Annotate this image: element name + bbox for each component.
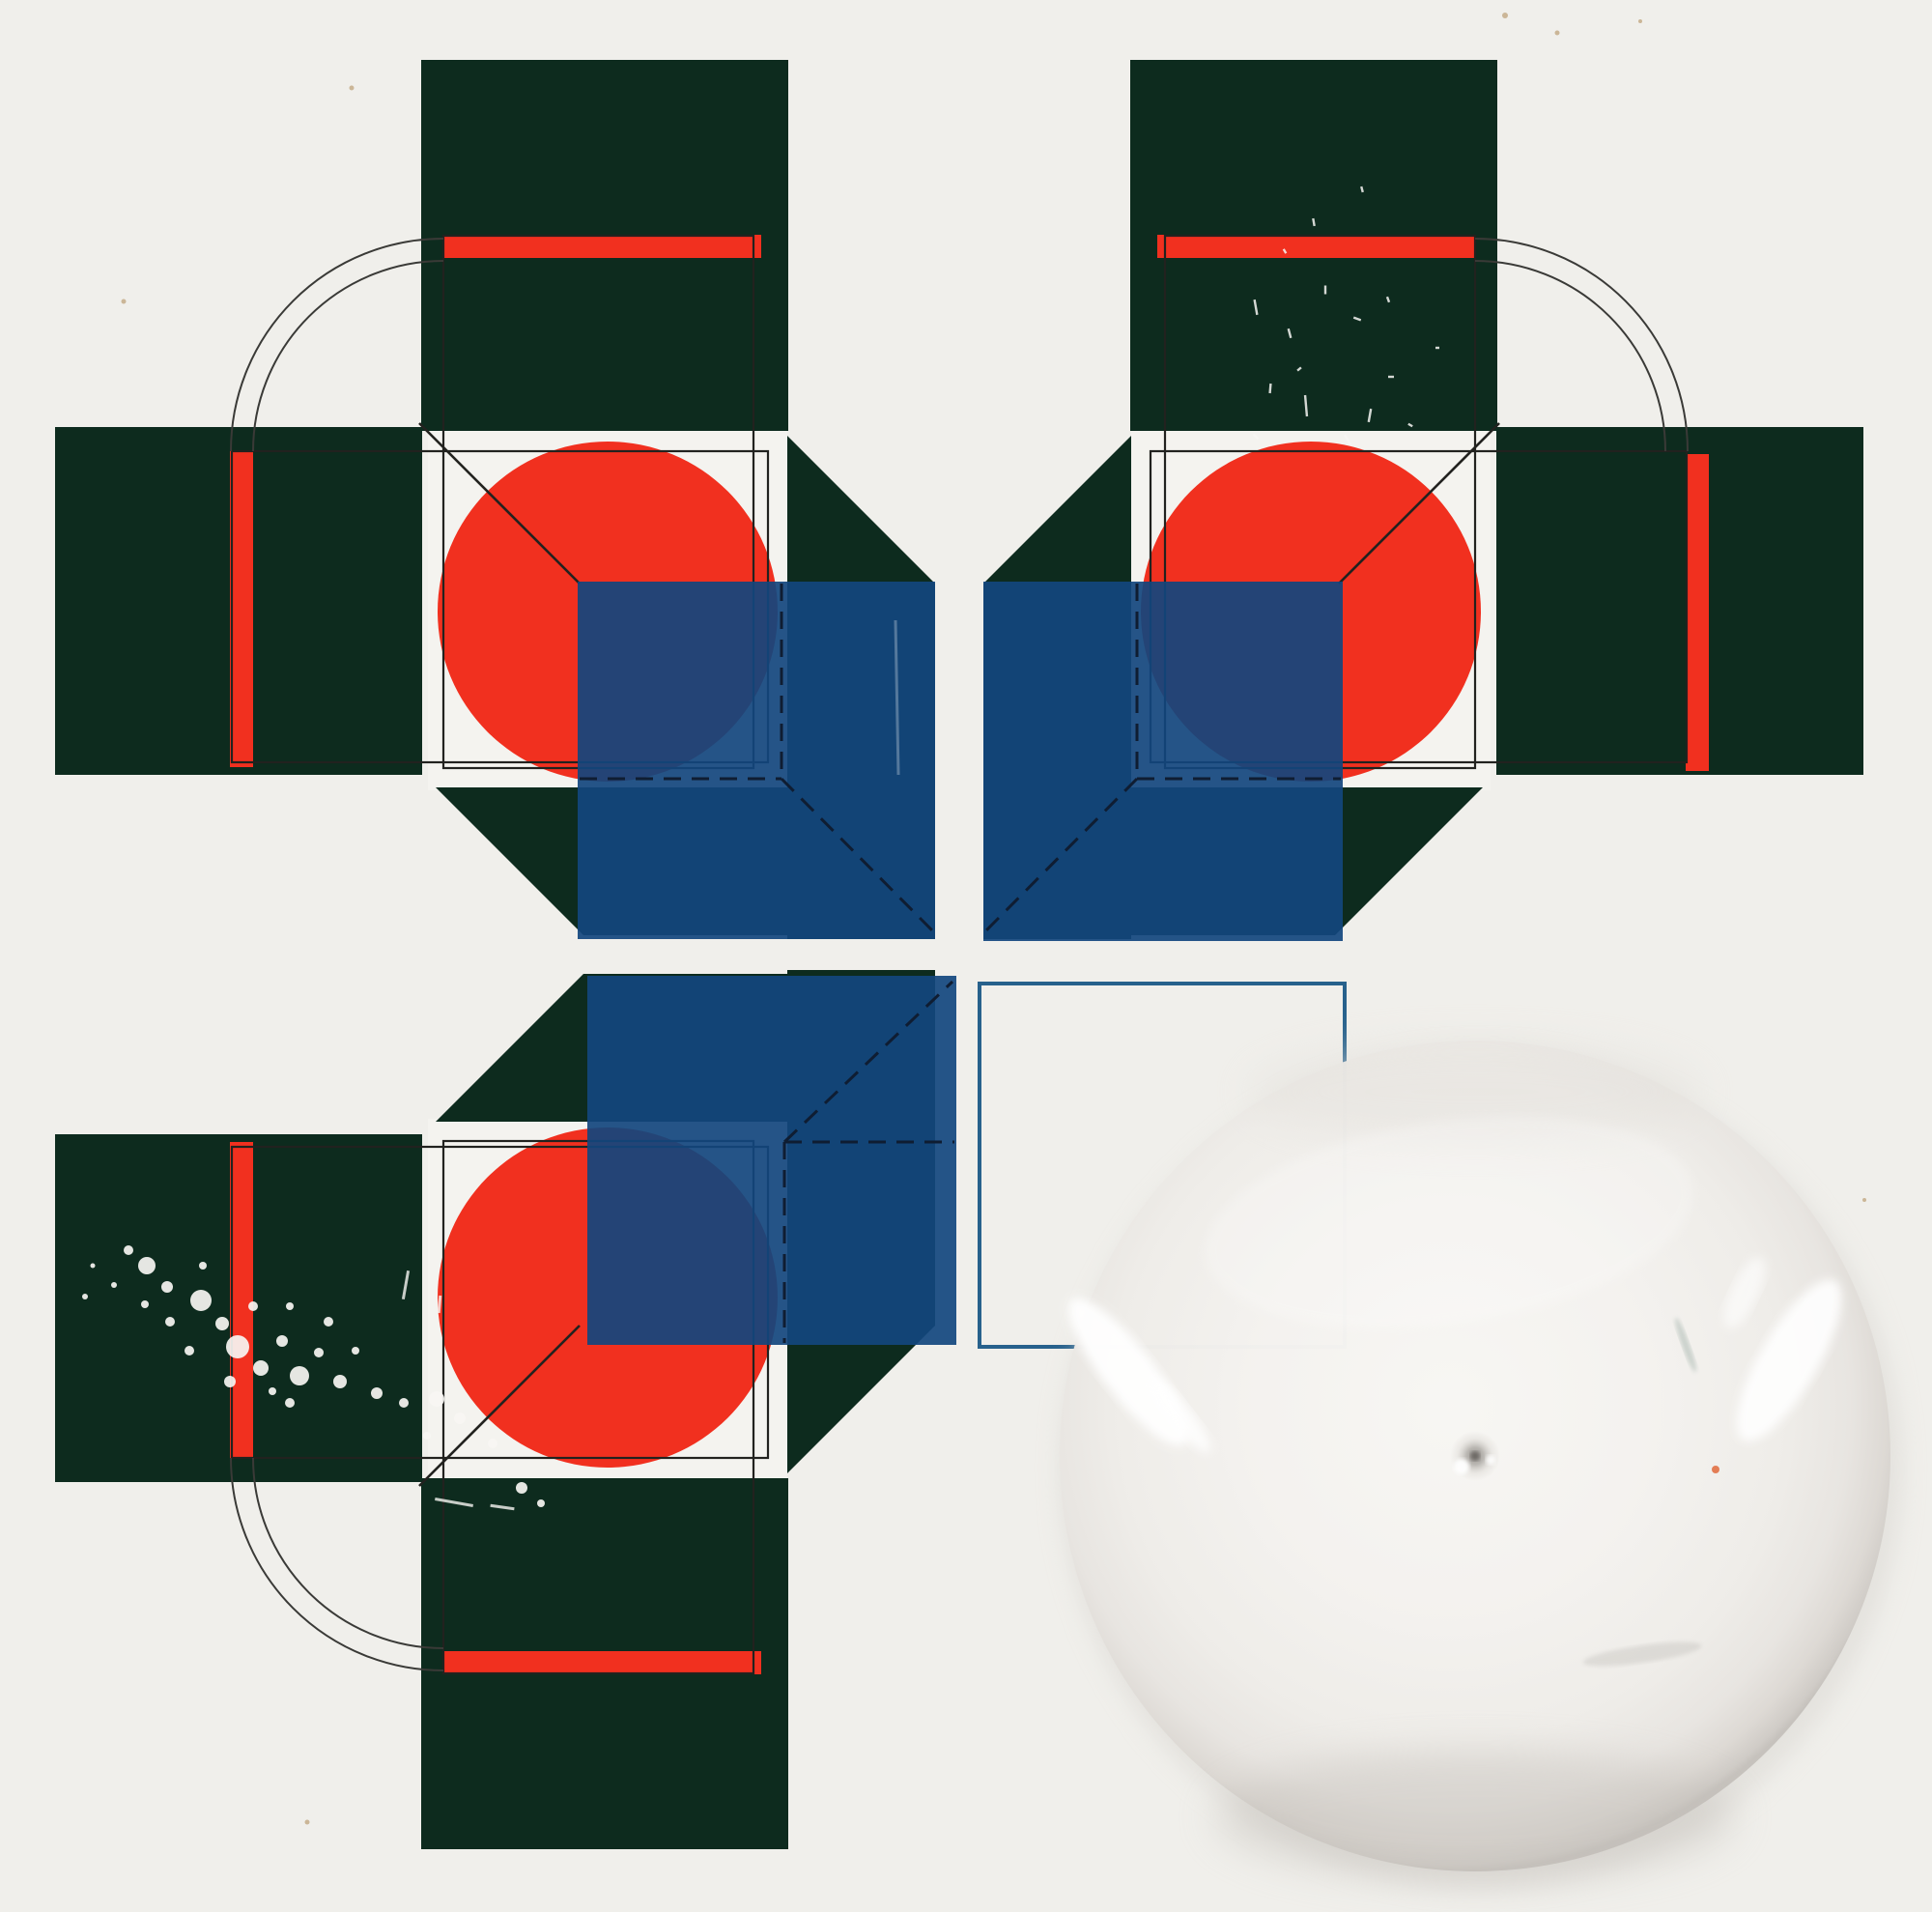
dust-speck	[1555, 31, 1560, 36]
bl-left-stripe	[230, 1142, 253, 1459]
paint-splatter	[190, 1290, 212, 1311]
paint-splatter	[165, 1317, 175, 1327]
dust-speck	[1862, 1198, 1866, 1202]
dust-speck	[1502, 13, 1508, 18]
dome-bottom-shade	[1214, 1751, 1736, 1882]
tl-top-stripe	[444, 235, 761, 258]
paint-splatter	[324, 1317, 333, 1327]
dust-speck	[122, 300, 127, 304]
paint-splatter	[454, 1413, 466, 1424]
paint-splatter	[253, 1360, 269, 1376]
paint-splatter	[399, 1398, 409, 1408]
paint-splatter	[82, 1294, 88, 1299]
artwork-canvas	[0, 0, 1932, 1912]
dust-speck	[350, 86, 355, 91]
tr-right-flap	[1496, 427, 1863, 775]
dome-dimple-dot	[1470, 1451, 1480, 1461]
scratch-mark	[1361, 186, 1363, 192]
paint-splatter	[371, 1387, 383, 1399]
paint-splatter	[290, 1366, 309, 1385]
paint-splatter	[248, 1301, 258, 1311]
paint-splatter	[314, 1348, 324, 1357]
paint-splatter	[138, 1257, 156, 1274]
tr-right-stripe	[1686, 454, 1709, 771]
dust-speck	[1638, 19, 1642, 23]
tl-blue-square	[578, 582, 935, 939]
paint-splatter	[215, 1317, 229, 1330]
bl-blue-square	[587, 976, 956, 1345]
paint-splatter	[333, 1375, 347, 1388]
paint-splatter	[185, 1346, 194, 1356]
scratch-mark	[1313, 218, 1314, 226]
paint-splatter	[286, 1302, 294, 1310]
paint-splatter	[352, 1347, 359, 1355]
paint-splatter	[285, 1398, 295, 1408]
tr-blue-square	[983, 582, 1343, 941]
paint-splatter	[516, 1482, 527, 1494]
tl-left-stripe	[230, 450, 253, 767]
paint-splatter	[141, 1300, 149, 1308]
dust-speck	[305, 1820, 310, 1825]
paint-splatter	[224, 1376, 236, 1387]
paint-splatter	[423, 1432, 431, 1440]
paint-splatter	[111, 1282, 117, 1288]
paint-splatter	[199, 1262, 207, 1270]
paint-splatter	[161, 1281, 173, 1293]
paint-splatter	[91, 1264, 96, 1269]
paint-splatter	[537, 1499, 545, 1507]
paint-splatter	[488, 1439, 497, 1448]
scratch-mark	[439, 1296, 440, 1313]
paint-splatter	[124, 1245, 133, 1255]
artwork-photo	[0, 0, 1932, 1912]
tr-top-stripe	[1157, 235, 1474, 258]
scratch-mark	[1270, 384, 1271, 393]
paint-splatter	[226, 1335, 249, 1358]
paint-splatter	[276, 1335, 288, 1347]
bl-bottom-stripe	[444, 1651, 761, 1674]
orange-speck	[1712, 1466, 1719, 1473]
paint-splatter	[429, 1391, 444, 1407]
dome-dimple-highlight	[1486, 1455, 1495, 1465]
dome-dimple-highlight	[1454, 1459, 1469, 1474]
paint-splatter	[269, 1387, 276, 1395]
